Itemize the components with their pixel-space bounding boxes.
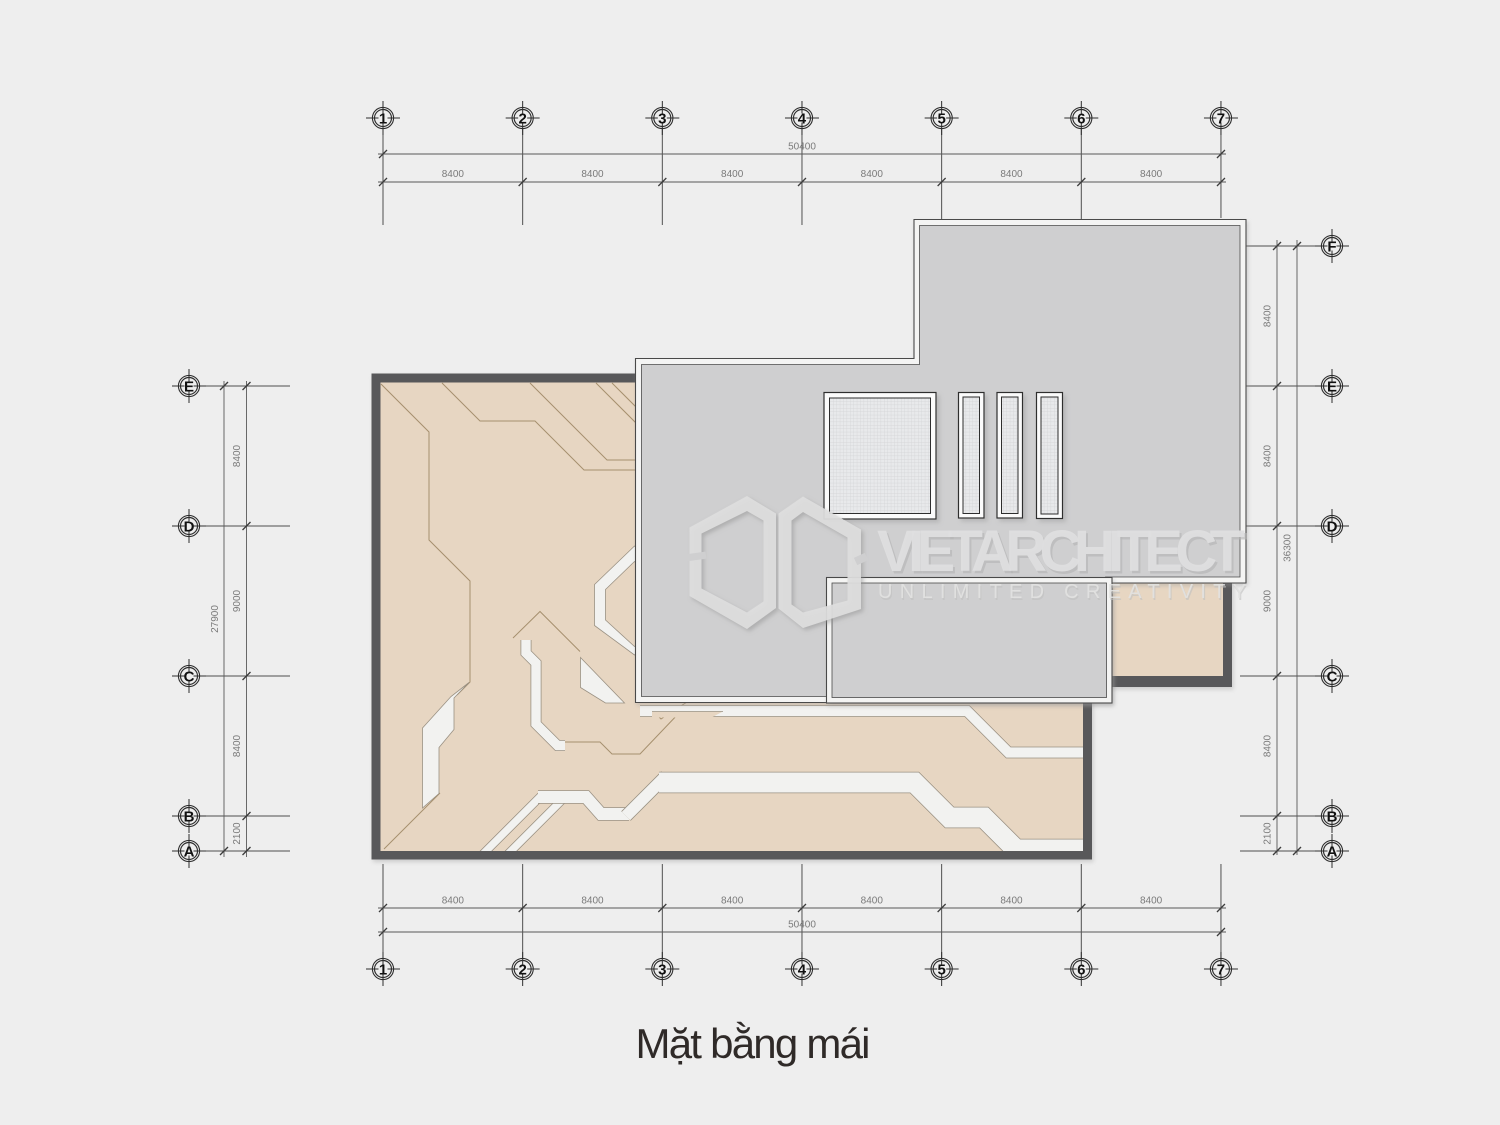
svg-text:8400: 8400 [232, 444, 243, 467]
svg-text:D: D [1327, 518, 1338, 535]
svg-text:Mặt bằng mái: Mặt bằng mái [636, 1020, 871, 1067]
svg-text:50400: 50400 [788, 920, 816, 931]
svg-text:2100: 2100 [1263, 822, 1274, 845]
svg-text:8400: 8400 [861, 896, 884, 907]
svg-text:8400: 8400 [721, 896, 744, 907]
svg-text:8400: 8400 [1140, 896, 1163, 907]
svg-text:36300: 36300 [1283, 534, 1294, 562]
svg-text:50400: 50400 [788, 142, 816, 153]
svg-text:5: 5 [937, 110, 945, 127]
svg-text:B: B [184, 808, 195, 825]
svg-text:2: 2 [518, 110, 526, 127]
svg-text:8400: 8400 [1263, 444, 1274, 467]
svg-text:9000: 9000 [232, 589, 243, 612]
svg-text:F: F [1327, 238, 1336, 255]
svg-text:VIETARCHITECT: VIETARCHITECT [877, 519, 1245, 584]
svg-text:8400: 8400 [1000, 896, 1023, 907]
svg-text:B: B [1327, 808, 1338, 825]
svg-text:6: 6 [1077, 961, 1085, 978]
svg-text:C: C [184, 668, 195, 685]
svg-text:A: A [1327, 843, 1338, 860]
svg-text:27900: 27900 [210, 605, 221, 633]
svg-text:8400: 8400 [1000, 169, 1023, 180]
svg-text:D: D [184, 518, 195, 535]
svg-text:7: 7 [1217, 110, 1225, 127]
svg-text:8400: 8400 [1140, 169, 1163, 180]
svg-text:8400: 8400 [1263, 304, 1274, 327]
svg-text:3: 3 [658, 110, 666, 127]
svg-text:8400: 8400 [861, 169, 884, 180]
svg-text:7: 7 [1217, 961, 1225, 978]
svg-text:6: 6 [1077, 110, 1085, 127]
svg-text:1: 1 [379, 110, 387, 127]
svg-text:8400: 8400 [442, 169, 465, 180]
svg-text:8400: 8400 [1263, 734, 1274, 757]
svg-text:A: A [184, 843, 195, 860]
svg-text:9000: 9000 [1263, 589, 1274, 612]
svg-text:8400: 8400 [721, 169, 744, 180]
svg-text:5: 5 [937, 961, 945, 978]
svg-text:1: 1 [379, 961, 387, 978]
svg-text:4: 4 [798, 110, 807, 127]
svg-text:C: C [1327, 668, 1338, 685]
svg-text:8400: 8400 [581, 896, 604, 907]
svg-text:E: E [184, 378, 194, 395]
svg-text:2100: 2100 [232, 822, 243, 845]
svg-text:E: E [1327, 378, 1337, 395]
svg-text:2: 2 [518, 961, 526, 978]
svg-text:8400: 8400 [442, 896, 465, 907]
svg-text:8400: 8400 [581, 169, 604, 180]
svg-text:8400: 8400 [232, 734, 243, 757]
svg-text:4: 4 [798, 961, 807, 978]
svg-text:3: 3 [658, 961, 666, 978]
